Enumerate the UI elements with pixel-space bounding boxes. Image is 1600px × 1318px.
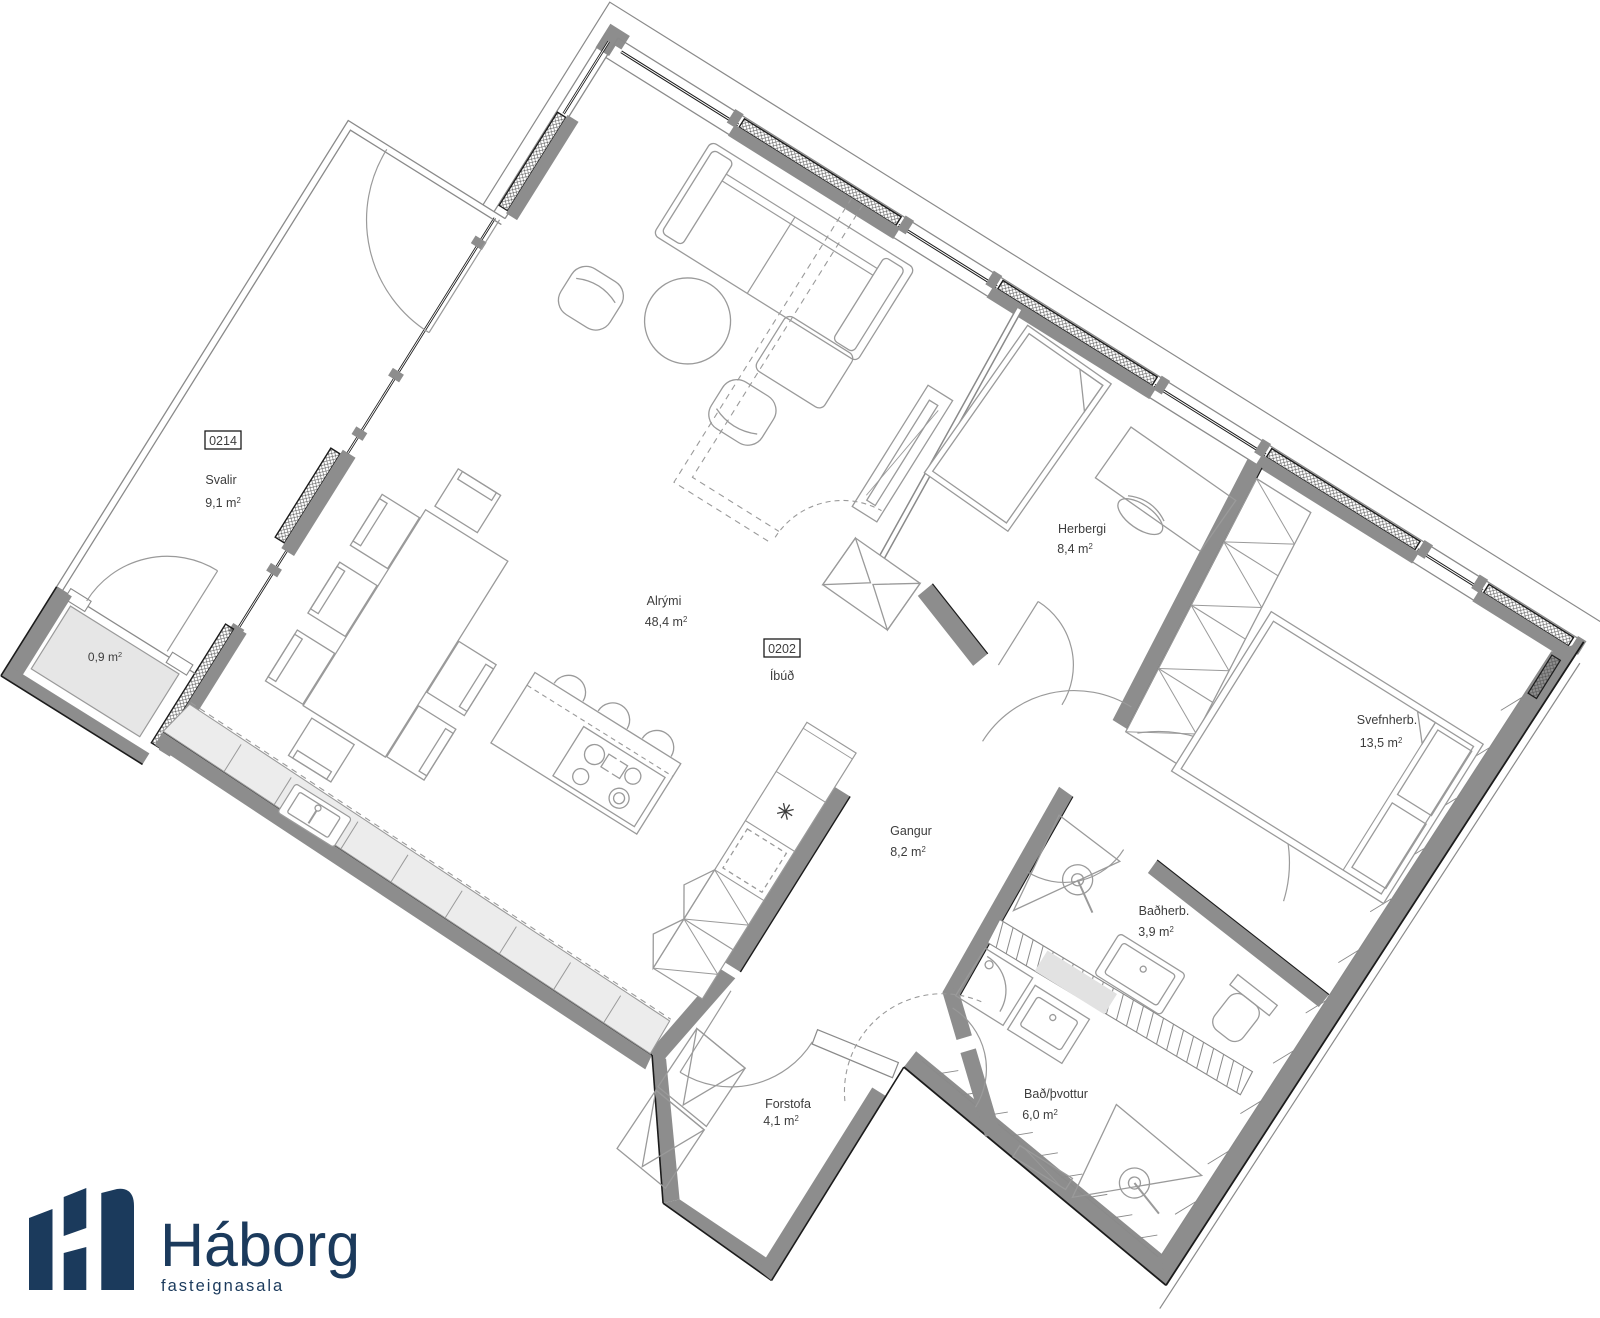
- svg-text:4,1 m2: 4,1 m2: [763, 1114, 799, 1128]
- svg-text:Svalir: Svalir: [205, 473, 236, 487]
- svg-text:3,9 m2: 3,9 m2: [1138, 925, 1174, 939]
- svg-text:6,0 m2: 6,0 m2: [1022, 1108, 1058, 1122]
- svg-text:8,2 m2: 8,2 m2: [890, 845, 926, 859]
- svg-text:48,4 m2: 48,4 m2: [645, 615, 688, 629]
- svg-text:8,4 m2: 8,4 m2: [1057, 542, 1093, 556]
- svg-text:0,9 m2: 0,9 m2: [88, 650, 122, 664]
- svg-text:0202: 0202: [768, 642, 796, 656]
- svg-text:Herbergi: Herbergi: [1058, 522, 1106, 536]
- svg-text:fasteignasala: fasteignasala: [161, 1277, 284, 1295]
- svg-text:Forstofa: Forstofa: [765, 1097, 811, 1111]
- svg-text:Svefnherb.: Svefnherb.: [1357, 713, 1417, 727]
- svg-text:Íbúð: Íbúð: [770, 668, 794, 683]
- svg-text:Háborg: Háborg: [160, 1211, 360, 1279]
- svg-text:Alrými: Alrými: [647, 594, 682, 608]
- svg-text:9,1 m2: 9,1 m2: [205, 496, 241, 510]
- svg-text:Baðherb.: Baðherb.: [1139, 904, 1190, 918]
- svg-text:13,5 m2: 13,5 m2: [1360, 736, 1403, 750]
- svg-text:0214: 0214: [209, 434, 237, 448]
- svg-text:Gangur: Gangur: [890, 824, 932, 838]
- svg-text:Bað/þvottur: Bað/þvottur: [1024, 1087, 1088, 1101]
